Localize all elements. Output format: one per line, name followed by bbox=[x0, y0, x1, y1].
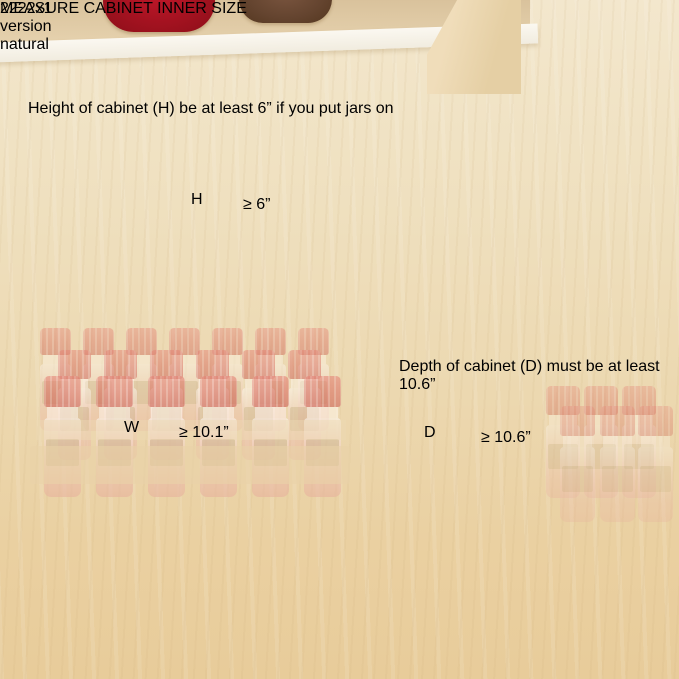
height-value: ≥ 6” bbox=[243, 196, 270, 214]
height-marker: H bbox=[191, 191, 203, 209]
slide-hardware bbox=[166, 526, 204, 548]
spice-jar bbox=[560, 406, 595, 522]
depth-value: ≥ 10.6” bbox=[481, 429, 531, 447]
depth-note: Depth of cabinet (D) must be at least 10… bbox=[399, 358, 679, 394]
banner-highlight: MEASURE bbox=[0, 0, 79, 17]
badge-line: version bbox=[0, 18, 53, 36]
depth-note-line: Depth of cabinet (D) bbox=[399, 358, 542, 375]
slide-hardware bbox=[384, 512, 424, 532]
title-banner: MEASURE CABINET INNER SIZE bbox=[0, 0, 247, 18]
height-note-line: Height of cabinet (H) be bbox=[28, 100, 197, 117]
height-note: Height of cabinet (H) be at least 6” if … bbox=[28, 100, 394, 118]
product-image: Height of cabinet (H) be at least 6” if … bbox=[0, 0, 679, 679]
brown-canister bbox=[239, 0, 332, 23]
spice-jar bbox=[600, 406, 635, 522]
width-marker: W bbox=[124, 419, 139, 437]
height-note-line: at least 6” if you put bbox=[201, 100, 341, 117]
height-note-line: jars on bbox=[346, 100, 394, 117]
banner-text: CABINET INNER SIZE bbox=[79, 0, 247, 17]
slide-hardware bbox=[464, 506, 502, 524]
slide-hardware bbox=[256, 518, 296, 538]
spice-jar bbox=[638, 406, 673, 522]
width-value: ≥ 10.1” bbox=[179, 424, 229, 442]
badge-line: natural bbox=[0, 36, 53, 54]
depth-marker: D bbox=[424, 424, 436, 442]
